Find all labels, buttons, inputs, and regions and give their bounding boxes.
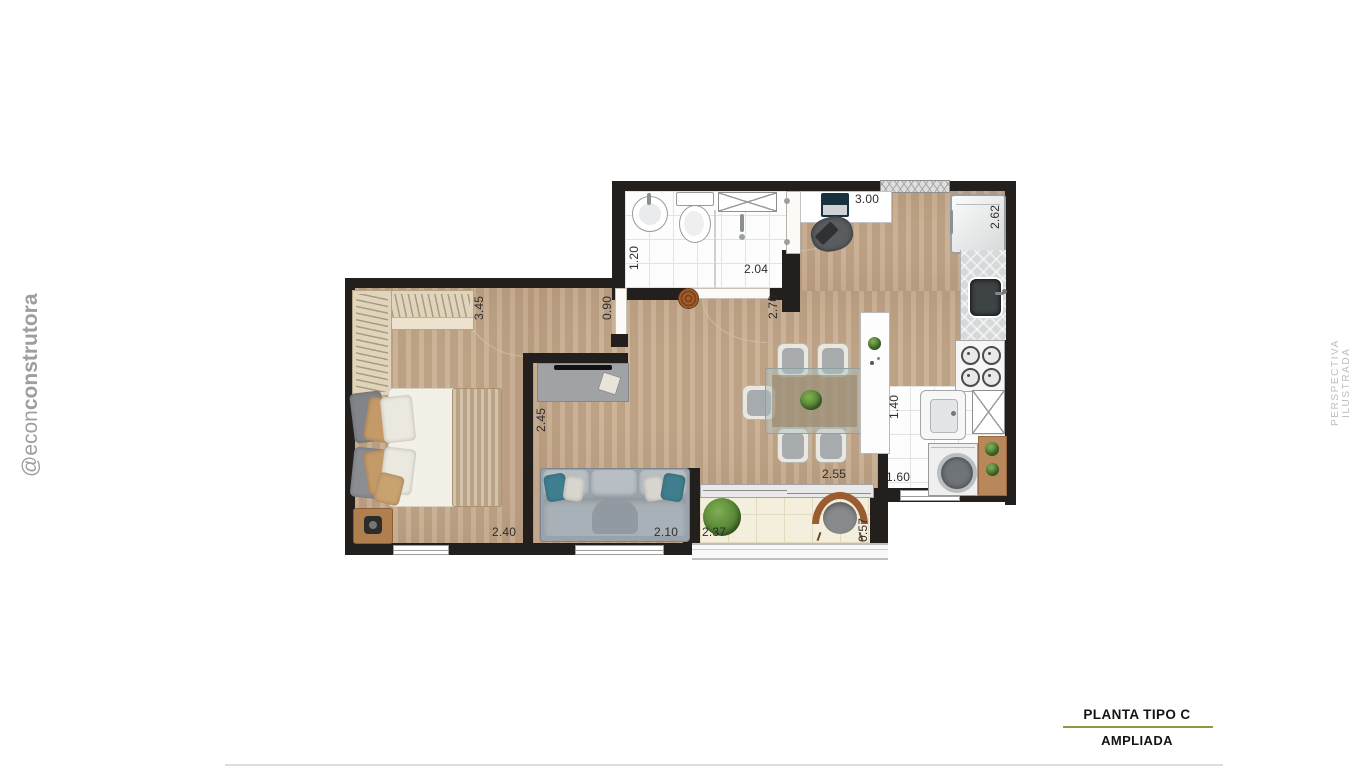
hall-partition xyxy=(615,288,627,338)
pillow-white-1 xyxy=(380,394,417,443)
plan-subtitle: AMPLIADA xyxy=(1058,733,1216,748)
stove xyxy=(955,340,1005,392)
toilet xyxy=(676,192,712,242)
decor-frame xyxy=(598,372,622,396)
floor-plan-page: { "branding": { "handle_light": "@econ",… xyxy=(0,0,1366,768)
footer-divider xyxy=(225,764,1223,766)
dim-bath-width: 2.04 xyxy=(744,262,768,276)
dim-service-width: 1.60 xyxy=(886,470,910,484)
dim-living-depth: 2.45 xyxy=(534,398,548,432)
dim-bath-depth: 1.20 xyxy=(627,236,641,270)
kitchen-island xyxy=(860,312,890,454)
shower-mixer xyxy=(740,214,744,232)
dim-dining-opening: 2.55 xyxy=(822,467,846,481)
dim-balcony-depth: 0.57 xyxy=(856,508,870,542)
sofa-pillow-teal-right xyxy=(660,472,686,502)
wall-top xyxy=(612,181,1016,191)
title-accent-line xyxy=(1063,726,1213,728)
table-centerpiece xyxy=(800,390,822,410)
tv-console xyxy=(537,363,629,402)
dim-hall-width: 0.90 xyxy=(600,286,614,320)
wall-tv xyxy=(523,353,628,363)
plant-shelf xyxy=(978,436,1007,496)
bedroom-window xyxy=(393,545,449,555)
laptop xyxy=(821,193,849,217)
dim-sofa-wall: 2.10 xyxy=(654,525,678,539)
dim-service-depth: 1.40 xyxy=(887,385,901,419)
brand-handle: @econconstrutora xyxy=(14,260,48,510)
wall-bath-left xyxy=(612,181,625,288)
brand-handle-bold: construtora xyxy=(19,293,42,410)
wall-bedroom-right xyxy=(523,353,533,543)
hall-rug xyxy=(678,288,699,309)
washing-machine xyxy=(928,443,978,496)
dim-balcony-width: 2.37 xyxy=(702,525,726,539)
dim-entry-depth: 2.70 xyxy=(766,285,780,319)
kitchen-counter xyxy=(960,250,1006,340)
living-window xyxy=(575,545,664,555)
dim-kitchen-width: 3.00 xyxy=(855,192,879,206)
dim-bedroom-depth: 3.45 xyxy=(472,286,486,320)
wardrobe-side xyxy=(352,290,392,396)
plan-title: PLANTA TIPO C xyxy=(1058,707,1216,722)
bathroom-niche xyxy=(718,192,777,212)
dim-kitchen-depth: 2.62 xyxy=(988,195,1002,229)
dim-bedroom-width: 2.40 xyxy=(492,525,516,539)
bathroom-sink xyxy=(632,196,668,232)
service-cabinet xyxy=(972,390,1005,434)
wall-bedroom-bottom xyxy=(345,543,558,555)
wall-entry-left xyxy=(782,250,800,312)
entry-door xyxy=(786,191,801,254)
brand-handle-light: @econ xyxy=(19,410,42,477)
nightstand xyxy=(353,508,393,544)
laundry-tank xyxy=(920,390,966,440)
tv xyxy=(554,365,612,370)
shower-screen xyxy=(714,210,716,288)
balcony-railing xyxy=(692,543,888,560)
hall-partition-cap xyxy=(611,334,628,347)
sofa-pillow-light-left xyxy=(562,475,585,503)
kitchen-sink xyxy=(968,277,1003,318)
bed xyxy=(352,386,502,507)
perspective-note: PERSPECTIVA ILUSTRADA xyxy=(1330,310,1346,455)
